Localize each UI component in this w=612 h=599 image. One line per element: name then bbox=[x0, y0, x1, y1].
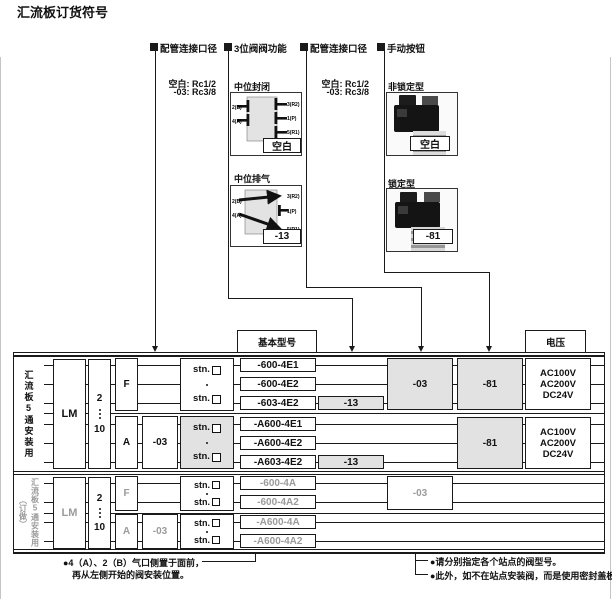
voltage-option: AC100V bbox=[540, 368, 576, 379]
callout-valve3-label: 3位阀阀功能 bbox=[234, 41, 287, 55]
voltage-box: AC100V AC200V DC24V bbox=[525, 417, 591, 469]
page-title: 汇流板订货符号 bbox=[17, 2, 108, 21]
voltage-option: AC100V bbox=[540, 427, 576, 438]
callout-line bbox=[228, 298, 353, 299]
page-edge-right bbox=[610, 57, 611, 599]
station-count-box: 2 10 bbox=[88, 477, 111, 549]
code-03-box: -03 bbox=[387, 358, 453, 410]
callout-line bbox=[384, 50, 385, 272]
exhaust-center-code: -13 bbox=[263, 229, 301, 244]
group-divider bbox=[44, 413, 604, 414]
callout-pipe2-label: 配管连接口径 bbox=[310, 41, 367, 55]
station-to: 10 bbox=[94, 522, 105, 533]
exhaust-center-label: 中位排气 bbox=[234, 172, 270, 185]
stn-label: stn. bbox=[194, 497, 210, 507]
stn-box-a: stn. stn. bbox=[180, 416, 234, 469]
callout-line bbox=[306, 50, 307, 287]
model-box: -A600-4E2 bbox=[240, 436, 316, 450]
voltage-option: AC200V bbox=[540, 379, 576, 390]
model-box: -A600-4A bbox=[240, 515, 316, 529]
note-connector bbox=[202, 561, 256, 562]
lower-side-label-text: 汇流板5通安装用 bbox=[30, 478, 41, 547]
model-box: -A603-4E2 bbox=[240, 455, 316, 469]
callout-line bbox=[384, 272, 490, 273]
wiring-a-box: A bbox=[115, 514, 138, 549]
port-label: 5(R1) bbox=[287, 130, 300, 136]
wiring-a-box: A bbox=[115, 416, 138, 469]
port-label: 2(B) bbox=[232, 105, 242, 111]
station-from: 2 bbox=[97, 393, 103, 404]
stn-label: stn. bbox=[194, 518, 210, 528]
stn-checkbox bbox=[212, 395, 221, 404]
locking-code: -81 bbox=[413, 229, 453, 244]
stn-label: stn. bbox=[193, 423, 210, 433]
stn-label: stn. bbox=[193, 365, 210, 375]
note-right-line1: ●请分别指定各个站点的阀型号。 bbox=[430, 555, 561, 568]
voltage-header: 电压 bbox=[525, 330, 586, 353]
series-box: LM bbox=[53, 477, 86, 549]
pipe1-option-03: -03: Rc3/8 bbox=[158, 87, 216, 97]
code-03-box: -03 bbox=[387, 476, 453, 510]
callout-line bbox=[155, 50, 156, 346]
stn-checkbox bbox=[212, 519, 220, 527]
port-label: 4(A) bbox=[232, 119, 242, 125]
ellipsis-dot bbox=[206, 531, 208, 533]
model-box: -600-4E2 bbox=[240, 377, 316, 391]
port-label: 1(P) bbox=[287, 116, 297, 122]
note-connector bbox=[415, 560, 428, 561]
ellipsis-dot bbox=[99, 413, 101, 415]
voltage-option: DC24V bbox=[543, 449, 574, 460]
model-box: -A600-4E1 bbox=[240, 417, 316, 431]
stn-box-a: stn. stn. bbox=[180, 514, 234, 549]
code-81-box: -81 bbox=[457, 358, 523, 410]
note-connector bbox=[415, 553, 416, 575]
table-top-border bbox=[13, 352, 605, 353]
code-13-box: -13 bbox=[318, 396, 384, 410]
stn-label: stn. bbox=[194, 535, 210, 545]
stn-checkbox bbox=[212, 481, 220, 489]
a-port-03-box: -03 bbox=[142, 514, 178, 549]
ellipsis-dot bbox=[99, 516, 101, 518]
series-box: LM bbox=[53, 359, 86, 469]
note-connector bbox=[415, 574, 428, 575]
callout-line bbox=[306, 287, 422, 288]
note-left-line2: 再从左侧开始的阀安装位置。 bbox=[72, 568, 189, 581]
table-section-divider bbox=[13, 471, 605, 472]
upper-side-label: 汇流板5通安装用 bbox=[14, 358, 44, 470]
voltage-option: DC24V bbox=[543, 390, 574, 401]
table-bottom-border bbox=[13, 552, 605, 554]
stn-checkbox bbox=[212, 498, 220, 506]
a-port-03-box: -03 bbox=[142, 416, 178, 469]
voltage-box: AC100V AC200V DC24V bbox=[525, 358, 591, 410]
pipe2-option-03: -03: Rc3/8 bbox=[311, 87, 369, 97]
stn-checkbox bbox=[212, 366, 221, 375]
callout-pipe1-label: 配管连接口径 bbox=[160, 41, 217, 55]
page-edge-left bbox=[0, 57, 1, 599]
model-box: -600-4E1 bbox=[240, 358, 316, 372]
table-section-divider bbox=[13, 474, 605, 475]
callout-manual-label: 手动按钮 bbox=[387, 41, 425, 55]
stn-checkbox bbox=[212, 453, 221, 462]
station-to: 10 bbox=[94, 424, 105, 435]
ellipsis-dot bbox=[99, 512, 101, 514]
port-label: 3(R2) bbox=[287, 102, 300, 108]
model-box: -600-4A2 bbox=[240, 495, 316, 509]
basic-model-header: 基本型号 bbox=[237, 330, 317, 353]
model-box: -A600-4A2 bbox=[240, 534, 316, 548]
stn-box-f: stn. stn. bbox=[180, 476, 234, 511]
stn-checkbox bbox=[212, 536, 220, 544]
wiring-f-box: F bbox=[115, 358, 138, 411]
stn-box-f: stn. stn. bbox=[180, 358, 234, 411]
callout-line bbox=[352, 298, 353, 346]
nonlocking-code: 空白 bbox=[410, 136, 450, 151]
ellipsis-dot bbox=[206, 493, 208, 495]
wiring-f-box: F bbox=[115, 476, 138, 511]
stn-label: stn. bbox=[193, 452, 210, 462]
port-label: 4(A) bbox=[232, 213, 242, 219]
station-count-box: 2 10 bbox=[88, 359, 111, 469]
callout-line bbox=[228, 50, 229, 298]
ellipsis-dot bbox=[99, 508, 101, 510]
table-right-border bbox=[604, 352, 605, 553]
code-13-box: -13 bbox=[318, 455, 384, 469]
order-made-note: （订做） bbox=[18, 496, 29, 528]
table-top-border bbox=[13, 355, 605, 357]
model-box: -600-4A bbox=[240, 476, 316, 490]
note-connector bbox=[255, 552, 256, 562]
model-box: -603-4E2 bbox=[240, 396, 316, 410]
port-label: 3(R2) bbox=[287, 194, 300, 200]
ellipsis-dot bbox=[206, 384, 208, 386]
stn-checkbox bbox=[212, 424, 221, 433]
port-label: 2(B) bbox=[232, 199, 242, 205]
callout-line bbox=[489, 272, 490, 346]
callout-line bbox=[421, 287, 422, 346]
section-marker-icon bbox=[150, 43, 158, 51]
stn-label: stn. bbox=[194, 480, 210, 490]
port-label: 1(P) bbox=[287, 209, 297, 215]
note-right-line2: ●此外，如不在站点安装阀，而是使用密封盖板进行关闭时，请填写-BP。 bbox=[430, 569, 612, 582]
voltage-option: AC200V bbox=[540, 438, 576, 449]
catalog-page: 汇流板订货符号 配管连接口径 3位阀阀功能 配管连接口径 手动按钮 空白: Rc… bbox=[0, 0, 612, 599]
ellipsis-dot bbox=[99, 417, 101, 419]
stn-label: stn. bbox=[193, 394, 210, 404]
station-from: 2 bbox=[97, 493, 103, 504]
ellipsis-dot bbox=[99, 409, 101, 411]
closed-center-code: 空白 bbox=[263, 138, 301, 153]
table-bottom-border bbox=[13, 549, 605, 550]
ellipsis-dot bbox=[206, 442, 208, 444]
code-81-box: -81 bbox=[457, 417, 523, 469]
lower-side-label: （订做） 汇流板5通安装用 bbox=[13, 476, 45, 548]
